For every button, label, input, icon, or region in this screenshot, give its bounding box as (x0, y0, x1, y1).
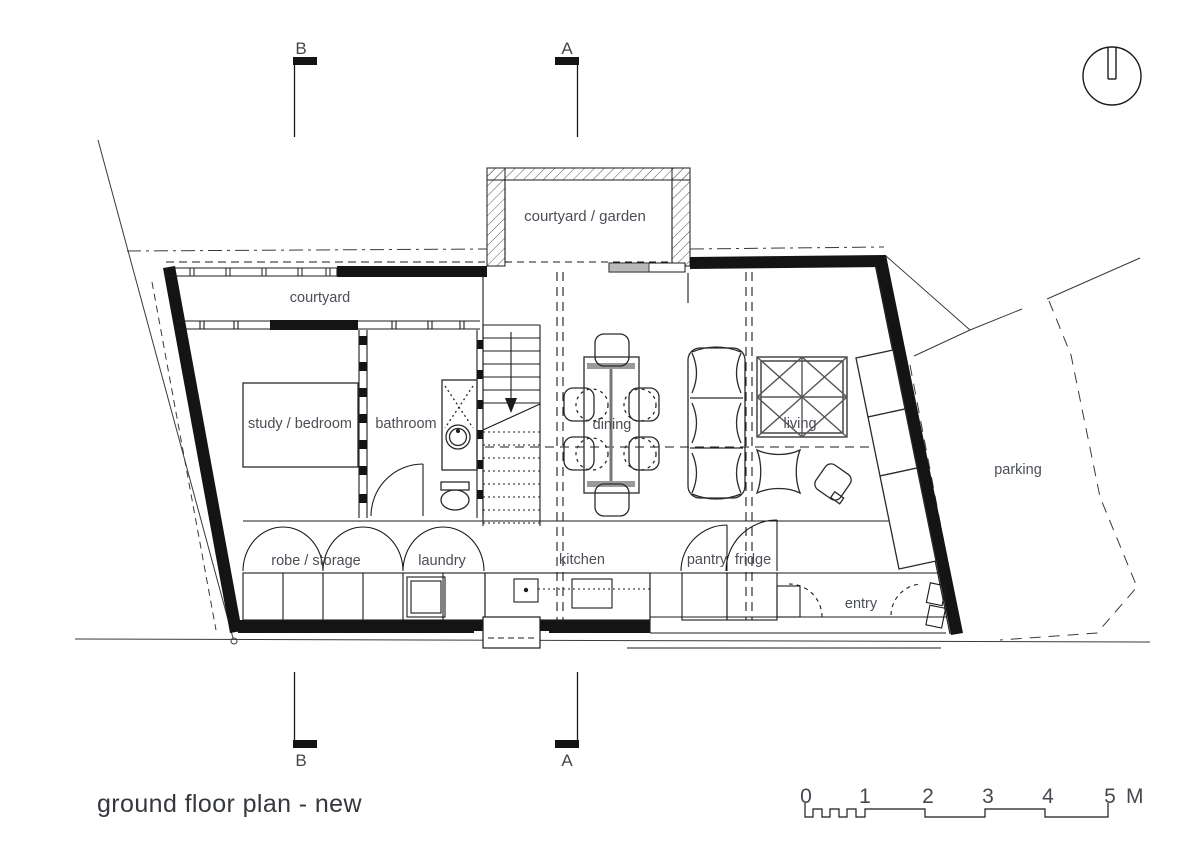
room-label-courtyard: courtyard (290, 290, 350, 306)
room-label-living: living (783, 416, 816, 432)
scale-unit: M (1126, 785, 1144, 808)
room-label-laundry: laundry (418, 553, 466, 569)
room-label-kitchen: kitchen (559, 552, 605, 568)
section-label-b-bottom: B (295, 751, 306, 770)
section-label-a-top: A (561, 39, 573, 58)
sofa (688, 347, 745, 499)
dining-chair (629, 437, 659, 470)
living-furniture (688, 347, 936, 569)
section-marker-a-bottom: A (555, 672, 579, 770)
floor-plan-page: B A B A courtyard / garden courtyard st (0, 0, 1200, 850)
section-markers: B A B A (293, 39, 579, 770)
scale-tick-4: 4 (1042, 785, 1054, 808)
scale-tick-2: 2 (922, 785, 934, 808)
scale-bar-line (805, 803, 1108, 817)
room-label-bathroom: bathroom (375, 416, 436, 432)
scale-bar: 0 1 2 3 4 5 M (800, 785, 1143, 817)
sliding-door-panel (609, 263, 649, 272)
room-label-fridge: fridge (735, 552, 771, 568)
room-label-pantry: pantry (687, 552, 728, 568)
pouf (812, 461, 856, 505)
section-marker-b-top: B (293, 39, 317, 137)
front-door-swing (891, 584, 921, 615)
bathroom-door-swing (371, 464, 423, 516)
kitchen-joinery (483, 573, 650, 648)
scale-tick-1: 1 (859, 785, 871, 808)
dining-chair (629, 388, 659, 421)
entry-door-swing (789, 584, 822, 617)
interior-partitions (176, 272, 946, 648)
washing-machine (407, 577, 445, 617)
dining-chair (595, 334, 629, 366)
section-label-a-bottom: A (561, 751, 573, 770)
window-box (483, 617, 540, 648)
stair-direction-arrow (505, 398, 517, 413)
scale-tick-5: 5 (1104, 785, 1116, 808)
dining-chair (564, 437, 594, 470)
staircase (483, 325, 540, 526)
pantry-fridge-joinery (681, 520, 777, 620)
section-label-b-top: B (295, 39, 306, 58)
room-label-dining: dining (593, 417, 632, 433)
entry-cupboard (777, 586, 800, 617)
room-label-study-bedroom: study / bedroom (248, 416, 352, 432)
room-label-robe-storage: robe / storage (271, 553, 360, 569)
toilet (441, 490, 469, 510)
room-label-parking: parking (994, 462, 1042, 478)
robe-laundry-joinery (243, 527, 485, 620)
floor-plan-drawing: B A B A courtyard / garden courtyard st (0, 0, 1200, 850)
drawing-title: ground floor plan - new (97, 790, 362, 818)
section-marker-a-top: A (555, 39, 579, 137)
north-arrow-icon (1083, 47, 1141, 105)
room-label-courtyard-garden: courtyard / garden (524, 208, 646, 225)
section-marker-b-bottom: B (293, 672, 317, 770)
room-label-entry: entry (845, 596, 878, 612)
bathroom-fixtures (371, 380, 477, 516)
scale-tick-3: 3 (982, 785, 994, 808)
scale-tick-0: 0 (800, 785, 812, 808)
dining-chair (595, 484, 629, 516)
floor-cushion (757, 450, 800, 493)
cooktop (572, 579, 612, 608)
dining-chair (564, 388, 594, 421)
